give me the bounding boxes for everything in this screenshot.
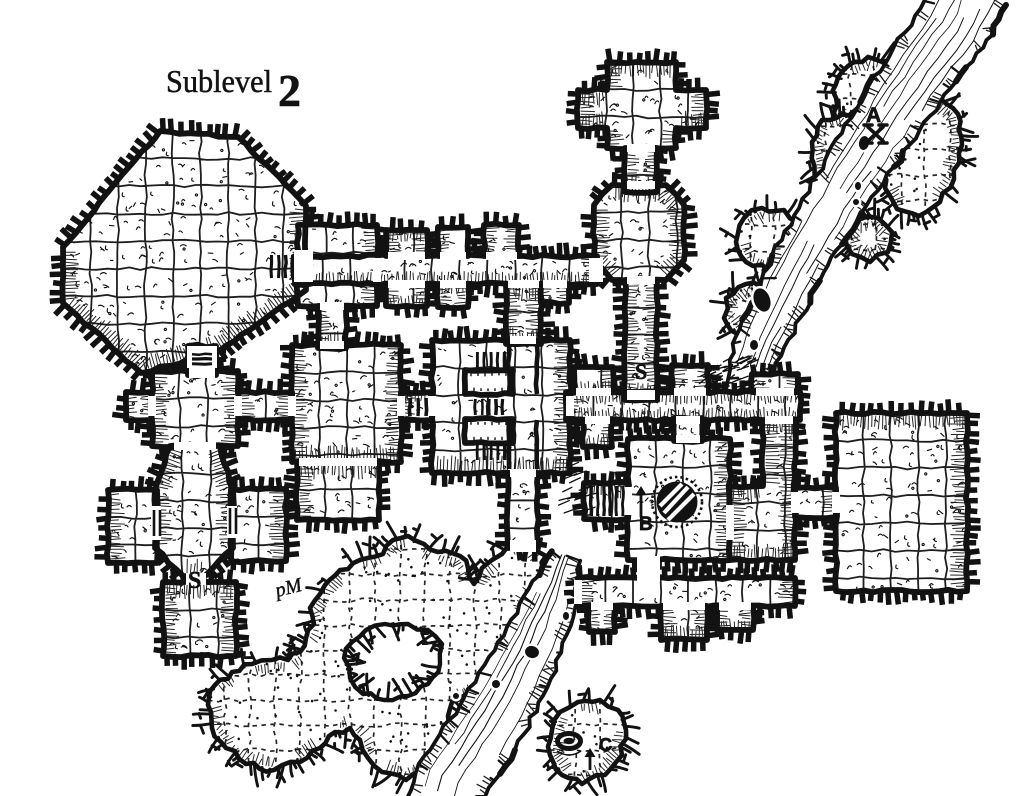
svg-text:2: 2 xyxy=(278,65,301,116)
svg-text:Sublevel: Sublevel xyxy=(166,63,272,99)
svg-text:A: A xyxy=(866,104,881,127)
svg-text:C: C xyxy=(599,735,612,755)
svg-text:S: S xyxy=(188,568,201,594)
svg-text:S: S xyxy=(635,359,647,384)
svg-text:B: B xyxy=(639,514,653,535)
